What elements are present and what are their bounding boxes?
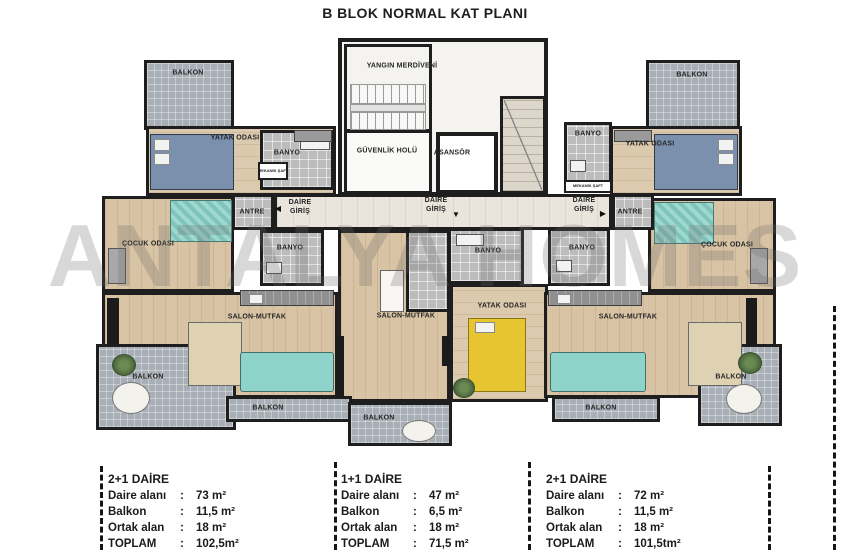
double-bed-left bbox=[150, 134, 234, 190]
kids-bed-right bbox=[654, 202, 714, 244]
balcony-table-center bbox=[402, 420, 436, 442]
balcony-table-left bbox=[112, 382, 150, 414]
room-label-apartment-entrance-center: DAİRE GİRİŞ bbox=[418, 196, 454, 214]
bathroom-lower-right bbox=[548, 228, 610, 286]
row-label: Daire alanı bbox=[108, 490, 180, 502]
dashed-separator-2 bbox=[334, 462, 337, 550]
page-title: B BLOK NORMAL KAT PLANI bbox=[0, 5, 850, 21]
room-label-balcony-corner-left: BALKON bbox=[132, 374, 163, 381]
dashed-separator-1 bbox=[100, 466, 103, 550]
row-label: Balkon bbox=[108, 506, 180, 518]
row-label: TOPLAM bbox=[108, 538, 180, 550]
room-label-bathroom-center: BANYO bbox=[475, 248, 501, 255]
balcony-strip-center bbox=[348, 402, 452, 446]
row-value: 18 m² bbox=[634, 522, 664, 534]
security-hall-room bbox=[344, 130, 432, 194]
stair-landing bbox=[350, 104, 426, 112]
row-value: 73 m² bbox=[196, 490, 226, 502]
room-label-elevator: ASANSÖR bbox=[434, 150, 470, 157]
room-label-shaft-left: MEKANİK ŞAFT bbox=[258, 169, 288, 174]
row-label: Ortak alan bbox=[341, 522, 413, 534]
table-row: Balkon:11,5 m² bbox=[546, 504, 766, 520]
row-colon: : bbox=[180, 506, 196, 518]
stair-flight-lower bbox=[350, 112, 426, 130]
row-label: Balkon bbox=[546, 506, 618, 518]
row-colon: : bbox=[413, 506, 429, 518]
table-row: Daire alanı:73 m² bbox=[108, 488, 328, 504]
bathroom-lower-left bbox=[260, 230, 324, 286]
kitchen-counter-right bbox=[548, 290, 642, 306]
row-colon: : bbox=[618, 538, 634, 550]
unit-table-center: 1+1 DAİRE Daire alanı:47 m² Balkon:6,5 m… bbox=[341, 472, 561, 550]
kitchen-island-center bbox=[380, 270, 404, 312]
room-label-bedroom-center: YATAK ODASI bbox=[478, 303, 527, 310]
desk-right bbox=[750, 248, 768, 284]
double-bed-center bbox=[468, 318, 526, 392]
desk-left bbox=[108, 248, 126, 284]
arrow-down-icon: ▼ bbox=[452, 211, 460, 219]
row-colon: : bbox=[413, 538, 429, 550]
row-colon: : bbox=[618, 522, 634, 534]
row-label: Daire alanı bbox=[341, 490, 413, 502]
table-row: Daire alanı:72 m² bbox=[546, 488, 766, 504]
room-label-bedroom-left: YATAK ODASI bbox=[211, 135, 260, 142]
room-label-apartment-entrance-left: DAİRE GİRİŞ bbox=[282, 198, 318, 216]
room-label-bathroom-top-right: BANYO bbox=[575, 131, 601, 138]
table-row: Ortak alan:18 m² bbox=[108, 520, 328, 536]
sink-top-right bbox=[570, 160, 586, 172]
balcony-table-right bbox=[726, 384, 762, 414]
room-label-balcony-strip-left: BALKON bbox=[252, 405, 283, 412]
table-row: TOPLAM:71,5 m² bbox=[341, 536, 561, 550]
table-row: Balkon:6,5 m² bbox=[341, 504, 561, 520]
row-colon: : bbox=[180, 522, 196, 534]
plant-right bbox=[738, 352, 762, 374]
entry-kitchen-center bbox=[406, 230, 450, 312]
dining-table-left bbox=[188, 322, 242, 386]
wall-stub-center-right bbox=[442, 336, 450, 366]
sink-lower-right bbox=[556, 260, 572, 272]
row-value: 6,5 m² bbox=[429, 506, 462, 518]
table-row: Ortak alan:18 m² bbox=[546, 520, 766, 536]
row-label: TOPLAM bbox=[341, 538, 413, 550]
unit-table-left: 2+1 DAİRE Daire alanı:73 m² Balkon:11,5 … bbox=[108, 472, 328, 550]
room-label-kids-room-right: ÇOCUK ODASI bbox=[701, 242, 753, 249]
room-label-living-room-left: SALON-MUTFAK bbox=[228, 314, 286, 321]
row-colon: : bbox=[618, 506, 634, 518]
row-value: 18 m² bbox=[196, 522, 226, 534]
row-value: 11,5 m² bbox=[634, 506, 673, 518]
room-label-apartment-entrance-right: DAİRE GİRİŞ bbox=[566, 196, 602, 214]
sofa-left bbox=[240, 352, 334, 392]
floor-plan-page: B BLOK NORMAL KAT PLANI bbox=[0, 0, 850, 550]
row-colon: : bbox=[180, 490, 196, 502]
room-label-bedroom-right: YATAK ODASI bbox=[626, 141, 675, 148]
balcony-top-right bbox=[646, 60, 740, 130]
table-row: Ortak alan:18 m² bbox=[341, 520, 561, 536]
room-label-shaft-right: MEKANİK ŞAFT bbox=[573, 184, 603, 189]
table-row: Daire alanı:47 m² bbox=[341, 488, 561, 504]
row-label: Ortak alan bbox=[108, 522, 180, 534]
row-colon: : bbox=[180, 538, 196, 550]
room-label-bathroom-lower-right: BANYO bbox=[569, 245, 595, 252]
table-row: TOPLAM:102,5m² bbox=[108, 536, 328, 550]
room-label-living-room-right: SALON-MUTFAK bbox=[599, 314, 657, 321]
dashed-separator-right-edge bbox=[833, 306, 836, 550]
row-label: TOPLAM bbox=[546, 538, 618, 550]
arrow-left-icon: ◀ bbox=[275, 205, 281, 213]
row-colon: : bbox=[413, 522, 429, 534]
plant-center bbox=[453, 378, 475, 398]
unit-type: 2+1 DAİRE bbox=[546, 472, 766, 488]
room-label-bathroom-top-left: BANYO bbox=[274, 150, 300, 157]
wall-stub-center-left bbox=[336, 336, 344, 398]
room-label-bathroom-lower-left: BANYO bbox=[277, 245, 303, 252]
row-value: 11,5 m² bbox=[196, 506, 235, 518]
table-row: TOPLAM:101,5tm² bbox=[546, 536, 766, 550]
unit-type: 2+1 DAİRE bbox=[108, 472, 328, 488]
room-label-balcony-strip-right: BALKON bbox=[585, 405, 616, 412]
sofa-right bbox=[550, 352, 646, 392]
balcony-strip-left bbox=[226, 396, 352, 422]
wardrobe-left bbox=[294, 130, 332, 142]
room-label-balcony-top-left: BALKON bbox=[172, 70, 203, 77]
room-label-living-room-center: SALON-MUTFAK bbox=[377, 313, 435, 320]
row-label: Balkon bbox=[341, 506, 413, 518]
row-label: Ortak alan bbox=[546, 522, 618, 534]
wall-stub-left bbox=[107, 298, 119, 344]
room-label-kids-room-left: ÇOCUK ODASI bbox=[122, 241, 174, 248]
room-label-entry-left: ANTRE bbox=[239, 209, 264, 216]
row-value: 102,5m² bbox=[196, 538, 239, 550]
row-colon: : bbox=[618, 490, 634, 502]
sink-lower-left bbox=[266, 262, 282, 274]
room-label-balcony-corner-right: BALKON bbox=[715, 374, 746, 381]
row-label: Daire alanı bbox=[546, 490, 618, 502]
dashed-separator-4 bbox=[768, 466, 771, 550]
row-value: 47 m² bbox=[429, 490, 459, 502]
room-label-balcony-top-right: BALKON bbox=[676, 72, 707, 79]
stair-flight-upper bbox=[350, 84, 426, 104]
wall-stub-right bbox=[746, 298, 757, 346]
elevator-room bbox=[436, 132, 498, 194]
row-value: 72 m² bbox=[634, 490, 664, 502]
row-value: 71,5 m² bbox=[429, 538, 469, 550]
kids-bed-left bbox=[170, 200, 232, 242]
bathtub-center bbox=[456, 234, 484, 246]
row-colon: : bbox=[413, 490, 429, 502]
table-row: Balkon:11,5 m² bbox=[108, 504, 328, 520]
room-label-fire-stairs: YANGIN MERDİVENİ bbox=[367, 63, 438, 70]
unit-type: 1+1 DAİRE bbox=[341, 472, 561, 488]
row-value: 18 m² bbox=[429, 522, 459, 534]
kitchen-counter-left bbox=[240, 290, 334, 306]
arrow-right-icon: ▶ bbox=[600, 210, 606, 218]
unit-table-right: 2+1 DAİRE Daire alanı:72 m² Balkon:11,5 … bbox=[546, 472, 766, 550]
room-label-security-hall: GÜVENLİK HOLÜ bbox=[357, 148, 418, 155]
room-label-balcony-strip-center: BALKON bbox=[363, 415, 394, 422]
row-value: 101,5tm² bbox=[634, 538, 681, 550]
room-label-entry-right: ANTRE bbox=[617, 209, 642, 216]
main-stair-direction-line bbox=[504, 100, 542, 190]
